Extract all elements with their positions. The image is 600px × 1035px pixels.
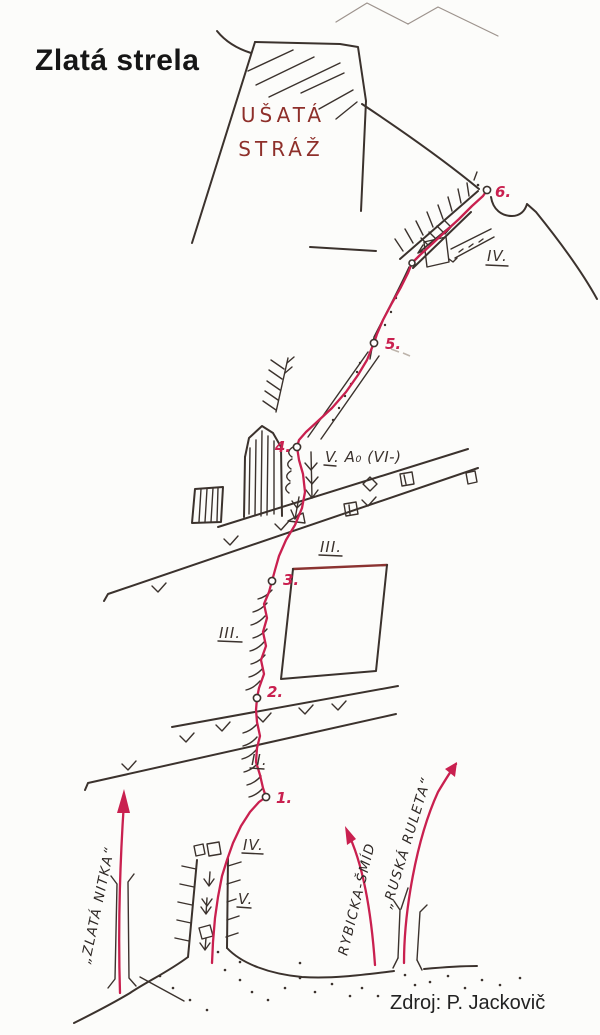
summit-name-line2: STRÁŽ xyxy=(238,137,323,161)
summit-name: UŠATÁ STRÁŽ xyxy=(238,103,325,161)
grass-mark xyxy=(122,761,136,770)
summit-name-line1: UŠATÁ xyxy=(241,103,325,127)
down-arrow xyxy=(201,898,212,914)
hatched-block xyxy=(192,487,223,523)
down-arrow-symbols xyxy=(288,452,318,523)
grass-mark xyxy=(180,733,194,742)
grass-mark xyxy=(332,701,346,710)
grass-mark xyxy=(275,521,289,530)
grass-mark xyxy=(224,536,238,545)
arrow-up-icon xyxy=(117,789,130,813)
crack-bracket xyxy=(108,876,117,988)
background-peaks xyxy=(336,3,498,36)
crack-bracket xyxy=(128,874,136,986)
belay-label-4: 4. xyxy=(274,438,291,456)
ledge-line xyxy=(310,247,376,251)
intermediate-bolt xyxy=(409,260,415,266)
belay-ring-6 xyxy=(483,186,490,193)
belay-ring-5 xyxy=(370,339,377,346)
grass-mark xyxy=(299,705,313,714)
belay-ring-4 xyxy=(293,443,300,450)
summit-ridge xyxy=(362,104,597,299)
start-chimney xyxy=(175,842,241,957)
rock-square xyxy=(400,472,414,486)
belay-label-2: 2. xyxy=(267,683,283,701)
grass-mark xyxy=(362,497,376,506)
arrow-up-icon xyxy=(445,762,457,777)
grade-labels: IV. V. A₀ (VI-) III. III. II. IV. V. xyxy=(218,247,508,908)
grade-pitch3: III. xyxy=(320,538,342,556)
topo-drawing: UŠATÁ STRÁŽ 1. 2. 3. 4. 5. 6. IV. V. A₀ … xyxy=(0,0,600,1035)
pitch3-crack-ticks xyxy=(246,590,272,690)
grade-start-lower: V. xyxy=(238,890,253,908)
grass-mark xyxy=(216,722,230,731)
belay-ring-1 xyxy=(262,793,269,800)
rock-square xyxy=(466,471,477,484)
grade-pitch2: III. xyxy=(219,624,241,642)
grass-mark xyxy=(152,583,166,592)
chockstone xyxy=(207,842,221,856)
grade-pitch1: II. xyxy=(251,751,268,769)
grade-start-upper: IV. xyxy=(243,836,264,854)
chockstone xyxy=(194,844,205,856)
belay-label-6: 6. xyxy=(495,183,511,201)
belay-ring-3 xyxy=(268,577,275,584)
lower-grass-band xyxy=(85,686,398,790)
label-zlata-nitka: „ZLATÁ NITKA“ xyxy=(77,845,118,965)
climbing-topo-sketch: Zlatá strela xyxy=(0,0,600,1035)
belay-ring-2 xyxy=(253,694,260,701)
upper-ramp xyxy=(395,172,479,268)
grass-mark xyxy=(257,713,271,722)
neighbor-route-names: „ZLATÁ NITKA“ RYBICKA-ŠMÍD „RUSKÁ RULETA… xyxy=(77,775,435,965)
ramp-block xyxy=(424,237,449,267)
belay-label-5: 5. xyxy=(385,335,401,353)
chockstone xyxy=(199,925,213,939)
credit-text: Zdroj: P. Jackovič xyxy=(390,992,545,1015)
grade-pitch4: V. A₀ (VI-) xyxy=(325,448,401,466)
down-arrow xyxy=(204,872,214,886)
grade-summit-ramp: IV. xyxy=(487,247,508,265)
fern-symbol xyxy=(263,357,294,412)
down-arrow xyxy=(200,938,210,950)
arrow-up-icon xyxy=(345,826,356,845)
belay-label-3: 3. xyxy=(283,571,299,589)
route-zlata-nitka xyxy=(108,789,136,993)
belay-label-1: 1. xyxy=(276,789,292,807)
